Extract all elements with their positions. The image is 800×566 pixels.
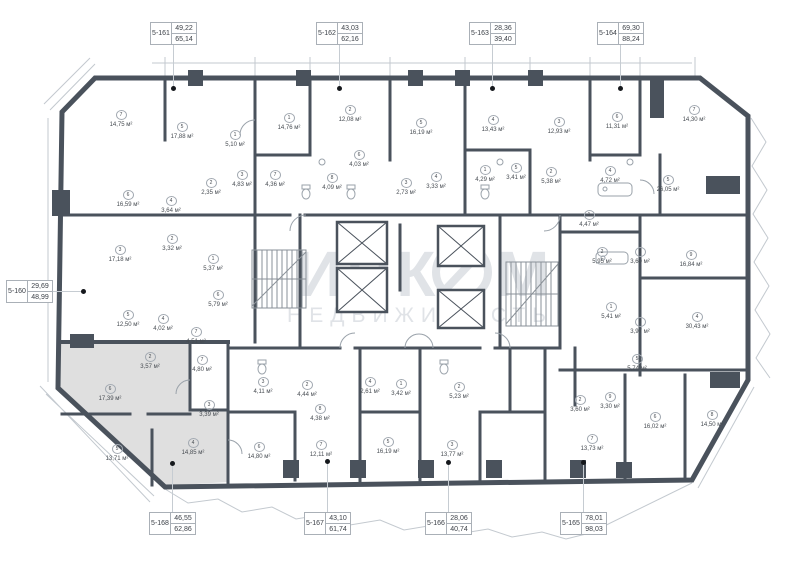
room-label: 212,08 м² [318,98,382,123]
unit-area-total: 39,40 [491,34,515,44]
leader-dot [337,86,342,91]
room-number: 5 [632,354,643,364]
room-label: 55,74 м² [605,347,669,372]
room-area: 4,72 м² [578,178,642,184]
room-number: 7 [116,110,127,120]
room-number: 7 [197,355,208,365]
room-area: 14,80 м² [227,454,291,460]
room-label: 74,51 м² [164,320,228,345]
unit-label-5-167[interactable]: 5-16743,1061,74 [304,512,351,535]
room-number: 5 [383,437,394,447]
room-area: 3,42 м² [369,391,433,397]
room-area: 5,38 м² [519,179,583,185]
unit-area-total: 98,03 [582,524,606,534]
room-area: 17,39 м² [78,396,142,402]
room-area: 12,08 м² [318,117,382,123]
unit-area-total: 62,16 [338,34,362,44]
room-label: 64,03 м² [327,143,391,168]
room-number: 2 [167,234,178,244]
room-number: 1 [284,113,295,123]
room-area: 3,33 м² [404,184,468,190]
room-label: 114,76 м² [257,106,321,131]
room-label: 414,85 м² [161,431,225,456]
unit-area-total: 48,99 [28,292,52,302]
unit-label-5-168[interactable]: 5-16846,5562,86 [149,512,196,535]
unit-label-5-162[interactable]: 5-16243,0362,16 [316,22,363,45]
room-label: 15,37 м² [181,247,245,272]
room-area: 13,71 м² [85,456,149,462]
room-area: 12,11 м² [289,452,353,458]
room-label: 712,11 м² [289,433,353,458]
unit-id: 5-167 [305,513,326,534]
leader-line [173,45,174,88]
unit-area-total: 65,14 [172,34,196,44]
unit-label-5-163[interactable]: 5-16328,3639,40 [469,22,516,45]
leader-dot [170,461,175,466]
room-area: 16,19 м² [356,449,420,455]
room-number: 6 [123,190,134,200]
room-label: 74,36 м² [243,163,307,188]
room-label: 13,42 м² [369,372,433,397]
unit-area-living: 43,10 [326,513,350,524]
unit-id: 5-168 [150,513,171,534]
room-label: 526,05 м² [636,168,700,193]
leader-line [172,463,173,512]
unit-id: 5-161 [151,23,172,44]
room-area: 3,39 м² [177,412,241,418]
room-area: 5,74 м² [605,366,669,372]
leader-dot [581,460,586,465]
room-area: 4,38 м² [288,416,352,422]
room-label: 614,80 м² [227,435,291,460]
room-label: 65,79 м² [186,283,250,308]
room-label: 313,77 м² [420,433,484,458]
room-number: 5 [177,122,188,132]
room-number: 3 [447,440,458,450]
room-number: 6 [105,384,116,394]
room-area: 11,31 м² [585,124,649,130]
room-area: 4,36 м² [243,182,307,188]
room-area: 3,64 м² [139,208,203,214]
room-label: 714,75 м² [89,103,153,128]
unit-label-5-160[interactable]: 5-16029,6948,99 [6,280,53,303]
room-number: 3 [635,317,646,327]
room-number: 3 [258,377,269,387]
room-number: 3 [635,247,646,257]
room-number: 7 [270,170,281,180]
room-label: 33,39 м² [177,393,241,418]
unit-id: 5-162 [317,23,338,44]
leader-line [620,45,621,88]
room-number: 1 [584,210,595,220]
unit-id: 5-166 [426,513,447,534]
room-area: 14,85 м² [161,450,225,456]
unit-area-total: 61,74 [326,524,350,534]
room-number: 3 [204,400,215,410]
room-number: 8 [315,404,326,414]
room-label: 516,19 м² [356,430,420,455]
leader-line [327,461,328,512]
room-label: 84,38 м² [288,397,352,422]
room-number: 5 [663,175,674,185]
room-label: 25,38 м² [519,160,583,185]
unit-id: 5-164 [598,23,619,44]
room-area: 3,97 м² [608,329,672,335]
room-number: 4 [431,172,442,182]
room-number: 4 [166,196,177,206]
room-number: 1 [396,379,407,389]
room-label: 14,47 м² [557,203,621,228]
room-label: 713,73 м² [560,427,624,452]
room-number: 2 [345,105,356,115]
room-area: 13,43 м² [461,127,525,133]
room-number: 4 [605,166,616,176]
leader-dot [171,86,176,91]
room-number: 6 [612,112,623,122]
room-number: 2 [454,382,465,392]
room-label: 84,09 м² [300,166,364,191]
floor-plan-canvas: ИНК М НЕДВИЖИМОСТЬ [0,0,800,566]
room-number: 6 [213,290,224,300]
room-area: 5,23 м² [427,394,491,400]
room-number: 1 [230,130,241,140]
room-area: 14,76 м² [257,125,321,131]
room-number: 6 [354,150,365,160]
room-area: 4,09 м² [300,185,364,191]
unit-area-living: 28,36 [491,23,515,34]
room-number: 6 [650,412,661,422]
unit-area-living: 46,55 [171,513,195,524]
room-area: 30,43 м² [665,324,729,330]
room-number: 3 [554,117,565,127]
unit-label-5-166[interactable]: 5-16628,0640,74 [425,512,472,535]
unit-label-5-164[interactable]: 5-16469,3088,24 [597,22,644,45]
room-label: 814,50 м² [680,403,744,428]
room-label: 33,97 м² [608,310,672,335]
leader-dot [446,460,451,465]
room-label: 413,43 м² [461,108,525,133]
room-number: 4 [488,115,499,125]
leader-line [583,462,584,512]
room-number: 5 [112,444,123,454]
unit-area-total: 88,24 [619,34,643,44]
room-label: 24,44 м² [275,373,339,398]
room-area: 4,80 м² [170,367,234,373]
room-label: 516,19 м² [389,111,453,136]
room-number: 7 [587,434,598,444]
leader-dot [325,459,330,464]
room-area: 4,47 м² [557,222,621,228]
room-number: 5 [416,118,427,128]
room-label: 312,93 м² [527,110,591,135]
unit-area-living: 78,01 [582,513,606,524]
room-area: 26,05 м² [636,187,700,193]
room-number: 7 [316,440,327,450]
unit-area-total: 40,74 [447,524,471,534]
room-number: 4 [188,438,199,448]
room-number: 3 [115,245,126,255]
room-area: 5,37 м² [181,266,245,272]
room-label: 617,39 м² [78,377,142,402]
leader-line [492,45,493,88]
leader-dot [81,289,86,294]
room-area: 13,73 м² [560,446,624,452]
units-layer: 5-16029,6948,995-16149,2265,145-16243,03… [0,0,800,566]
unit-id: 5-165 [561,513,582,534]
room-number: 2 [546,167,557,177]
room-area: 2,35 м² [179,190,243,196]
room-area: 13,77 м² [420,452,484,458]
room-area: 5,10 м² [203,142,267,148]
room-number: 7 [689,105,700,115]
unit-label-5-165[interactable]: 5-16578,0198,03 [560,512,607,535]
room-area: 17,18 м² [88,257,152,263]
room-label: 916,84 м² [659,243,723,268]
room-area: 16,84 м² [659,262,723,268]
room-number: 2 [302,380,313,390]
room-label: 513,71 м² [85,437,149,462]
room-area: 2,73 м² [374,190,438,196]
unit-id: 5-160 [7,281,28,302]
unit-area-living: 69,30 [619,23,643,34]
leader-line [53,291,83,292]
room-number: 1 [208,254,219,264]
unit-area-living: 28,06 [447,513,471,524]
room-area: 12,93 м² [527,129,591,135]
room-number: 7 [191,327,202,337]
room-label: 74,80 м² [170,348,234,373]
room-number: 2 [597,247,608,257]
room-number: 9 [686,250,697,260]
room-number: 8 [707,410,718,420]
unit-id: 5-163 [470,23,491,44]
room-number: 8 [327,173,338,183]
room-area: 5,79 м² [186,302,250,308]
room-label: 714,30 м² [662,98,726,123]
room-label: 611,31 м² [585,105,649,130]
room-label: 430,43 м² [665,305,729,330]
room-label: 44,72 м² [578,159,642,184]
unit-area-living: 43,03 [338,23,362,34]
room-number: 9 [605,392,616,402]
room-area: 14,30 м² [662,117,726,123]
leader-dot [618,86,623,91]
leader-dot [490,86,495,91]
room-label: 25,23 м² [427,375,491,400]
room-label: 616,02 м² [623,405,687,430]
leader-line [339,45,340,88]
unit-area-living: 49,22 [172,23,196,34]
leader-line [448,462,449,512]
unit-label-5-161[interactable]: 5-16149,2265,14 [150,22,197,45]
room-number: 6 [254,442,265,452]
room-area: 14,75 м² [89,122,153,128]
room-number: 2 [145,352,156,362]
room-area: 16,19 м² [389,130,453,136]
unit-area-total: 62,86 [171,524,195,534]
room-number: 4 [692,312,703,322]
room-area: 14,50 м² [680,422,744,428]
room-area: 16,02 м² [623,424,687,430]
unit-area-living: 29,69 [28,281,52,292]
